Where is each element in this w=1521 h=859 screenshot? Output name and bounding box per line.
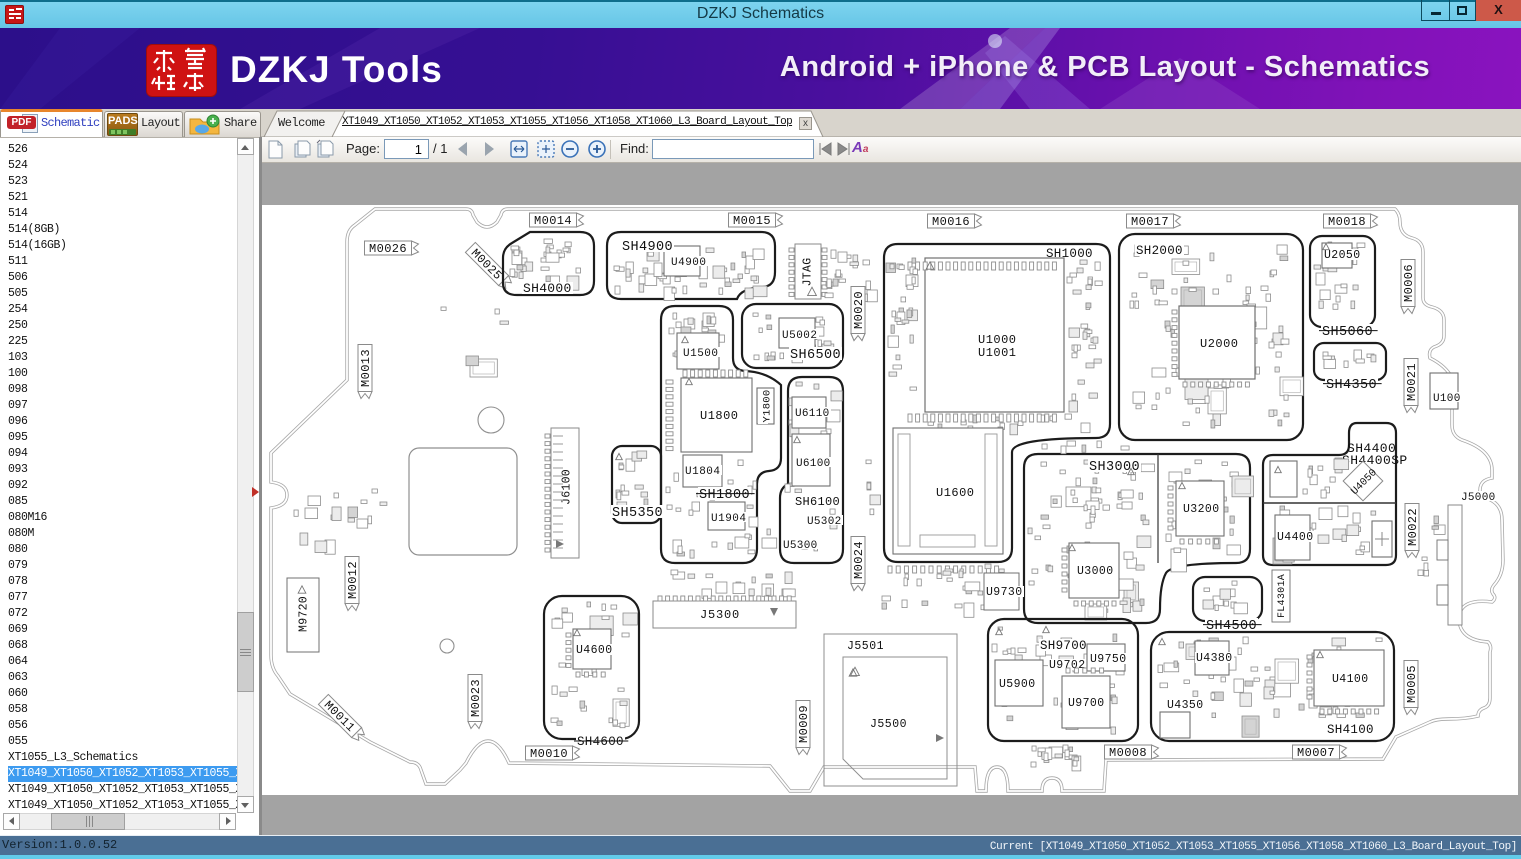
- svg-text:M0020: M0020: [852, 291, 866, 329]
- svg-text:U1600: U1600: [936, 486, 975, 500]
- svg-text:U1800: U1800: [700, 409, 739, 423]
- svg-text:SH4100: SH4100: [1327, 723, 1374, 737]
- svg-text:U1804: U1804: [685, 466, 721, 478]
- svg-text:U2000: U2000: [1200, 337, 1239, 351]
- svg-text:U4380: U4380: [1196, 652, 1233, 665]
- svg-text:SH2000: SH2000: [1136, 244, 1183, 258]
- svg-text:SH1800: SH1800: [699, 488, 750, 503]
- svg-text:J5300: J5300: [700, 608, 740, 622]
- svg-text:U6110: U6110: [795, 408, 830, 420]
- svg-text:M0018: M0018: [1328, 215, 1366, 229]
- svg-text:JTAG: JTAG: [802, 258, 815, 287]
- svg-text:M0022: M0022: [1406, 508, 1420, 546]
- svg-text:U6100: U6100: [796, 458, 831, 470]
- svg-text:J5501: J5501: [847, 640, 884, 653]
- svg-text:M0012: M0012: [346, 561, 360, 599]
- svg-text:U5302: U5302: [807, 516, 842, 528]
- svg-text:M9720: M9720: [298, 596, 311, 632]
- svg-text:U1904: U1904: [711, 513, 747, 525]
- svg-text:U1500: U1500: [683, 348, 719, 360]
- svg-text:M0005: M0005: [1405, 665, 1419, 703]
- svg-text:Y1800: Y1800: [761, 389, 773, 422]
- svg-text:SH4900: SH4900: [622, 240, 673, 255]
- svg-text:SH5350: SH5350: [612, 506, 663, 521]
- svg-text:M0023: M0023: [469, 679, 483, 717]
- svg-text:J5000: J5000: [1461, 492, 1496, 504]
- svg-text:U9750: U9750: [1090, 653, 1127, 666]
- svg-text:SH5060: SH5060: [1322, 325, 1373, 340]
- svg-text:M0010: M0010: [530, 747, 568, 761]
- svg-text:U4400: U4400: [1277, 531, 1314, 544]
- svg-text:FL4301A: FL4301A: [1277, 574, 1288, 618]
- svg-text:SH4400SP: SH4400SP: [1342, 453, 1408, 468]
- svg-text:U3200: U3200: [1183, 503, 1220, 516]
- svg-text:U4100: U4100: [1332, 673, 1369, 686]
- svg-text:J5500: J5500: [870, 718, 907, 731]
- svg-text:M0013: M0013: [359, 349, 373, 387]
- svg-text:U5002: U5002: [782, 330, 818, 342]
- svg-text:U4900: U4900: [671, 257, 707, 269]
- svg-text:SH3000: SH3000: [1089, 460, 1140, 475]
- svg-text:M0017: M0017: [1131, 215, 1169, 229]
- svg-text:M0014: M0014: [534, 214, 572, 228]
- svg-text:U9730: U9730: [986, 586, 1023, 599]
- svg-text:U100: U100: [1433, 393, 1461, 405]
- svg-text:U4600: U4600: [576, 644, 613, 657]
- svg-text:U9700: U9700: [1068, 697, 1105, 710]
- svg-text:M0007: M0007: [1297, 746, 1335, 760]
- svg-text:M0024: M0024: [852, 541, 866, 579]
- svg-text:SH6100: SH6100: [795, 495, 840, 509]
- svg-text:SH4600: SH4600: [577, 735, 624, 749]
- svg-text:SH4350: SH4350: [1326, 378, 1377, 393]
- svg-text:M0016: M0016: [932, 215, 970, 229]
- svg-text:U1001: U1001: [978, 346, 1017, 360]
- svg-text:U2050: U2050: [1324, 249, 1361, 262]
- svg-text:M0021: M0021: [1405, 363, 1419, 401]
- svg-text:M0009: M0009: [797, 705, 811, 743]
- svg-text:U4350: U4350: [1167, 699, 1204, 712]
- svg-text:U5900: U5900: [999, 678, 1036, 691]
- svg-text:U1000: U1000: [978, 333, 1017, 347]
- svg-text:U5300: U5300: [783, 540, 818, 552]
- svg-text:SH9700: SH9700: [1040, 639, 1087, 653]
- svg-text:M0026: M0026: [369, 242, 407, 256]
- svg-text:M0008: M0008: [1109, 746, 1147, 760]
- svg-text:SH6500: SH6500: [790, 348, 841, 363]
- svg-text:M0015: M0015: [733, 214, 771, 228]
- svg-text:SH4000: SH4000: [523, 281, 572, 296]
- svg-text:U3000: U3000: [1077, 565, 1114, 578]
- svg-text:M0006: M0006: [1402, 264, 1416, 302]
